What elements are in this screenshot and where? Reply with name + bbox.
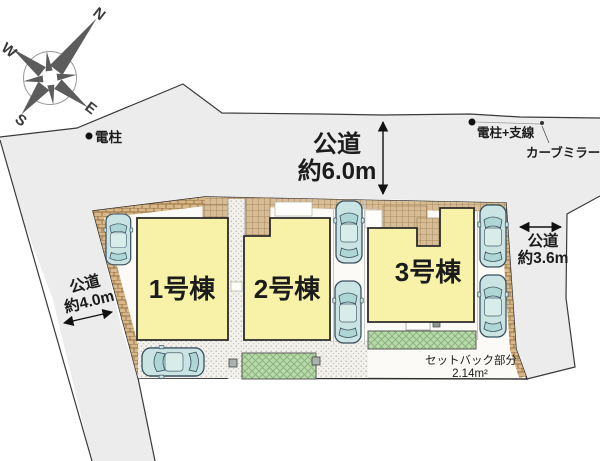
pole-wire-dot	[469, 119, 476, 126]
site-plan-svg: 1号棟 2号棟 3号棟 公道 約6.0m 公道 約4.0m 公道 約3.6m 電…	[0, 0, 600, 461]
stepping-stone	[231, 282, 242, 291]
gate-post-1	[229, 359, 237, 367]
car-right-1	[478, 205, 508, 267]
car-middle-1	[334, 201, 364, 263]
car-bottom-parking	[142, 346, 204, 379]
road-top-width: 約6.0m	[298, 157, 377, 185]
setback-label: セットバック部分	[425, 353, 517, 367]
building-2-label: 2号棟	[254, 274, 321, 304]
green-area-2	[368, 331, 476, 349]
pole-wire-label: 電柱+支線	[477, 125, 535, 140]
car-middle-2	[333, 281, 363, 343]
building-1-label: 1号棟	[149, 274, 216, 304]
road-right-width: 約3.6m	[518, 248, 569, 267]
curve-mirror-label: カーブミラー	[526, 145, 600, 160]
road-top-name: 公道	[313, 130, 361, 158]
tile-patch-2	[246, 198, 270, 236]
tile-patch-4	[417, 218, 440, 246]
utility-pole-label: 電柱	[95, 129, 122, 145]
building-3-label: 3号棟	[395, 257, 462, 287]
utility-pole-dot	[86, 133, 93, 140]
site-plan: 1号棟 2号棟 3号棟 公道 約6.0m 公道 約4.0m 公道 約3.6m 電…	[0, 0, 600, 461]
green-area-1	[242, 353, 316, 379]
entrance-gap-2	[365, 210, 382, 228]
road-right-name: 公道	[527, 231, 559, 250]
car-left-parking	[104, 214, 133, 265]
car-right-2	[478, 275, 508, 337]
entrance-gap-1	[275, 202, 312, 216]
curve-mirror-dot	[540, 121, 544, 125]
setback-area: 2.14m²	[452, 368, 488, 380]
gate-post-2	[312, 357, 320, 365]
